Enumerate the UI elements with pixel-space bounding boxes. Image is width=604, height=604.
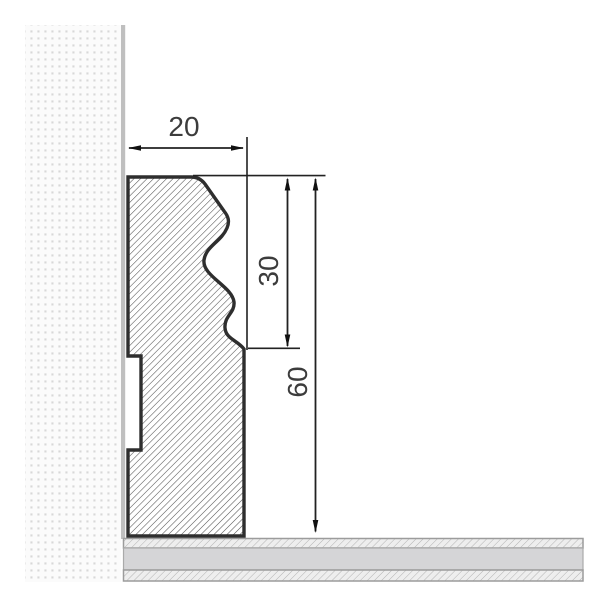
wall-surface-line [121,25,125,539]
technical-drawing-canvas: 20 30 60 [0,0,604,604]
total-height-dimension-label: 60 [282,366,313,397]
floor [124,539,584,582]
skirting-profile [128,177,244,536]
floor-top-layer [124,539,584,549]
floor-core-layer [124,548,584,570]
wall-plaster-texture [25,25,121,582]
width-dimension-label: 20 [168,111,199,142]
wall [25,25,125,582]
upper-height-dimension-label: 30 [253,255,284,286]
skirting-section-diagram: 20 30 60 [0,0,604,604]
floor-bottom-layer [124,570,584,581]
